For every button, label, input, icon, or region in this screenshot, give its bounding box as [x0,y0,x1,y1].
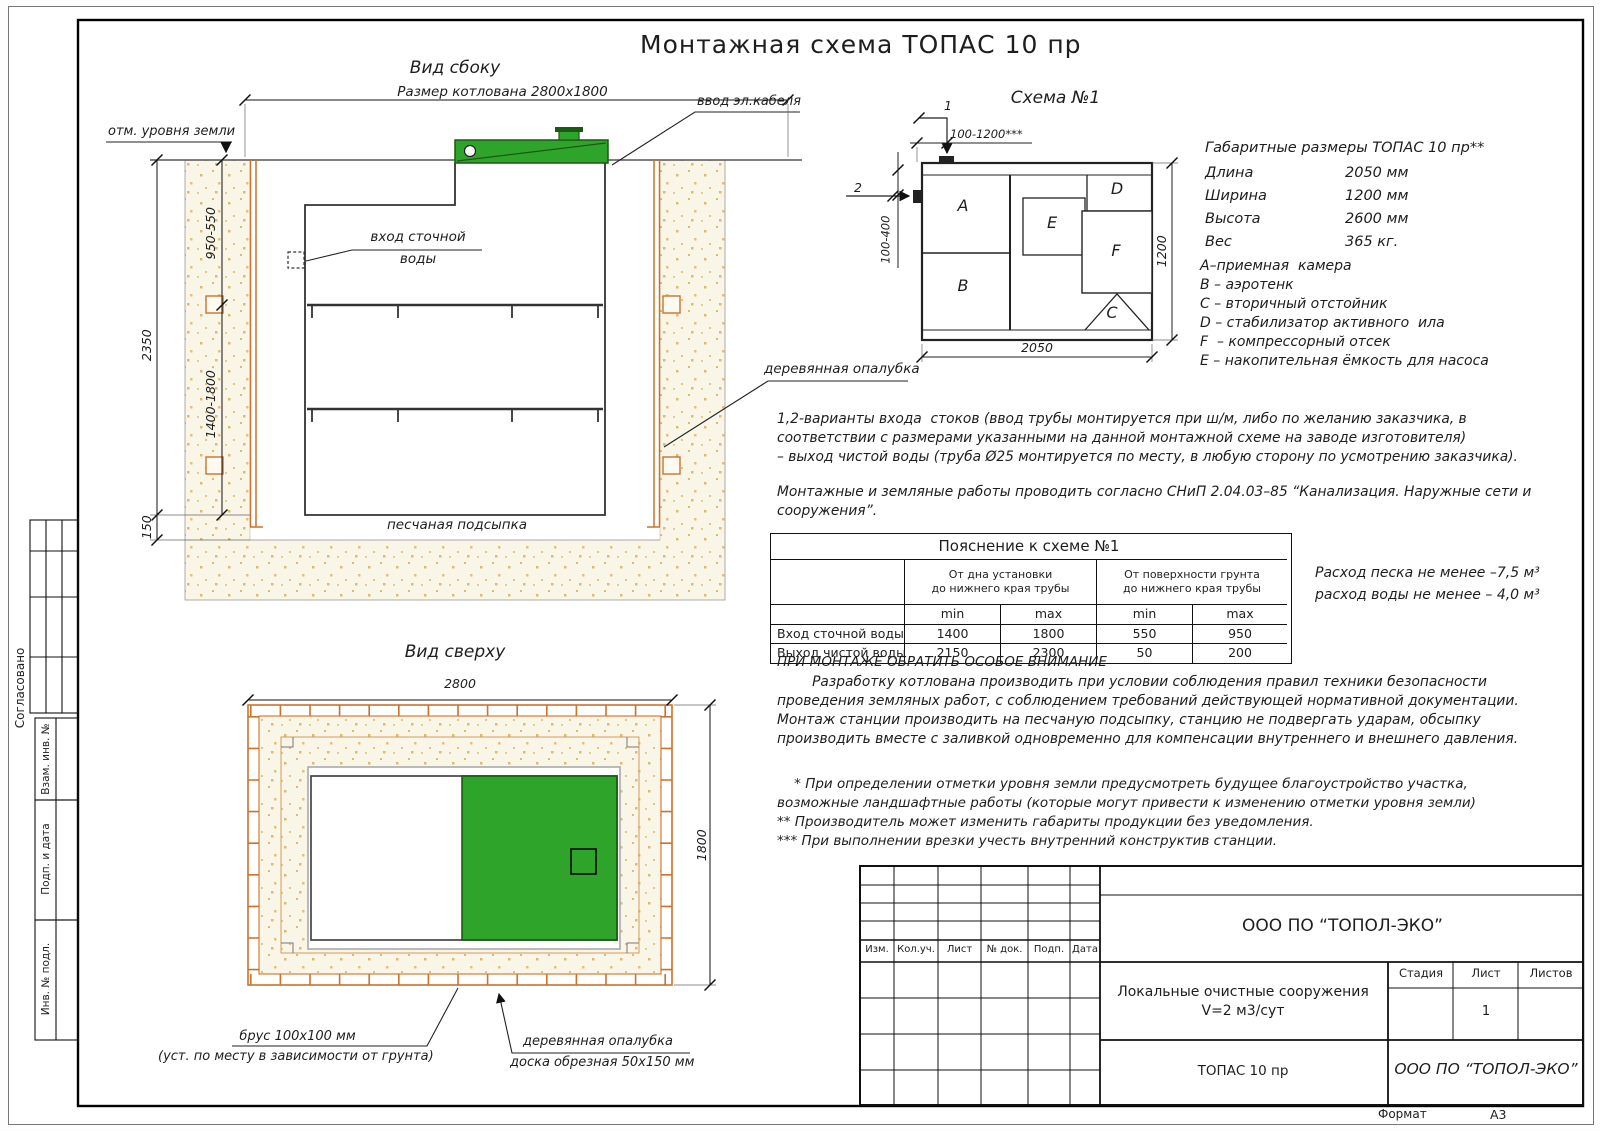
table-max-header: max [1193,605,1287,625]
company-name: ООО ПО “ТОПОЛ-ЭКО” [1110,917,1575,937]
table-min-header: min [905,605,1001,625]
legend-line-b: В – аэротенк [1200,277,1294,293]
sheet-value: 1 [1454,1005,1518,1020]
table-row-outlet-v4: 200 [1193,644,1287,663]
project-name-line2: V=2 м3/сут [1103,1003,1383,1019]
sidebar-box1-label: Взам. инв. № [40,719,52,799]
dim-bedding: 150 [140,497,154,557]
table-min-header: min [1097,605,1193,625]
legend-line-a: А–приемная камера [1200,258,1352,274]
schema-dim-width: 2050 [1007,341,1067,355]
formwork-board-label-line2: доска обрезная 50x150 мм [510,1056,688,1071]
product-name: ТОПАС 10 пр [1103,1064,1383,1080]
stamp-col-data: Дата [1070,944,1100,956]
attention-body-line3: Монтаж станции производить на песчаную п… [777,713,1481,729]
sidebar-box2-label: Подп. и дата [40,819,52,899]
compartment-b-label: B [948,277,978,295]
table-row-inlet-name: Вход сточной воды [771,625,905,644]
note-variants-line2: соответствии с размерами указанными на д… [777,431,1466,447]
side-view-title: Вид сбоку [400,59,510,79]
top-view-title: Вид сверху [395,643,515,663]
table-empty-cell [771,605,905,625]
table-row-outlet-v3: 50 [1097,644,1193,663]
note-snip-line2: сооружения”. [777,504,877,520]
spec-value-height: 2600 мм [1345,211,1408,228]
attention-body-line4: производить вместе с заливкой одновремен… [777,732,1518,748]
compartment-f-label: F [1101,242,1131,260]
formwork-label: деревянная опалубка [764,362,910,378]
top-view-dim-width: 2800 [430,677,490,691]
inlet-port-1 [939,156,954,164]
spec-label-weight: Вес [1205,234,1232,251]
beam-label-line2: (уст. по месту в зависимости от грунта) [158,1050,433,1065]
schema-title: Схема №1 [998,89,1113,109]
table-row-inlet-v2: 1800 [1001,625,1097,644]
format-label: Формат [1378,1108,1427,1122]
spec-label-height: Высота [1205,211,1261,228]
compartment-a-label: A [948,197,978,215]
inlet-label-line2: воды [352,252,484,268]
stamp-col-list: Лист [938,944,981,956]
stamp-col-podp: Подп. [1028,944,1070,956]
note-snip-line1: Монтажные и земляные работы проводить со… [777,485,1531,501]
vent-stack [559,131,579,140]
compartment-e-label: E [1037,214,1067,232]
ground-level-label: отм. уровня земли [108,125,235,140]
dim-upper-range: 950-550 [204,198,218,268]
sidebar-agreed-label: Согласовано [14,638,28,738]
page-title: Монтажная схема ТОПАС 10 пр [640,31,1040,60]
footnote-line4: *** При выполнении врезки учесть внутрен… [777,834,1277,850]
schema-mark-2: 2 [850,181,866,195]
spec-label-length: Длина [1205,165,1253,182]
note-variants-line3: – выход чистой воды (труба Ø25 монтирует… [777,450,1518,466]
compartment-d-label: D [1102,180,1132,198]
sidebar-box3-label: Инв. № подл. [40,939,52,1019]
sand-bedding-label: песчаная подсыпка [382,518,532,534]
sheets-label: Листов [1519,967,1583,980]
specs-heading: Габаритные размеры ТОПАС 10 пр** [1205,140,1484,157]
stamp-col-ndok: № док. [981,944,1028,956]
sand-consumption: Расход песка не менее –7,5 м³ [1315,565,1540,581]
spec-label-width: Ширина [1205,188,1267,205]
table-max-header: max [1001,605,1097,625]
cable-entry-label: ввод эл.кабеля [697,95,801,110]
vent-cap [555,127,583,132]
table-row-inlet-v3: 550 [1097,625,1193,644]
installation-drawing-page: { "page": { "title": "Монтажная схема ТО… [0,0,1600,1131]
water-consumption: расход воды не менее – 4,0 м³ [1315,587,1540,603]
beam-label-line1: брус 100x100 мм [225,1030,370,1045]
legend-line-d: D – стабилизатор активного ила [1200,315,1445,331]
company-name-italic: ООО ПО “ТОПОЛ-ЭКО” [1392,1061,1580,1079]
formwork-board-label-line1: деревянная опалубка [518,1035,678,1050]
table-group2-header: От поверхности грунта до нижнего края тр… [1097,560,1287,605]
legend-line-f: F – компрессорный отсек [1200,334,1391,350]
lid-port-circle [465,146,476,157]
explanation-table: Пояснение к схеме №1 От дна установки до… [770,533,1292,664]
table-row-inlet-v4: 950 [1193,625,1287,644]
spec-value-width: 1200 мм [1345,188,1408,205]
legend-line-c: С – вторичный отстойник [1200,296,1388,312]
spec-value-weight: 365 кг. [1345,234,1398,251]
project-name-line1: Локальные очистные сооружения [1103,984,1383,1000]
schema-mark-1: 1 [940,99,956,113]
stamp-col-koluch: Кол.уч. [894,944,938,956]
tank-top-green-lid [462,776,617,940]
footnote-line3: ** Производитель может изменить габариты… [777,815,1314,831]
schema-dim-top: 100-1200*** [950,128,1023,141]
pit-size-dimension: Размер котлована 2800x1800 [330,85,675,101]
legend-line-e: Е – накопительная ёмкость для насоса [1200,353,1489,369]
dim-depth-total: 2350 [140,315,154,375]
attention-body-line1: Разработку котлована производить при усл… [777,675,1487,691]
table-corner-cell [771,560,905,605]
sheet-label: Лист [1454,967,1518,980]
top-view-dim-height: 1800 [695,815,709,875]
excavation-pit [250,160,660,540]
inlet-port-2 [913,190,923,203]
attention-heading: ПРИ МОНТАЖЕ ОБРАТИТЬ ОСОБОЕ ВНИМАНИЕ [777,655,1107,671]
spec-value-length: 2050 мм [1345,165,1408,182]
dim-lower-range: 1400-1800 [204,359,218,449]
schema-dim-height: 1200 [1155,221,1169,281]
note-variants-line1: 1,2-варианты входа стоков (ввод трубы мо… [777,412,1467,428]
table-group1-header: От дна установки до нижнего края трубы [905,560,1097,605]
stamp-col-izm: Изм. [855,944,899,956]
footnote-line2: возможные ландшафтные работы (которые мо… [777,796,1476,812]
table-row-inlet-v1: 1400 [905,625,1001,644]
format-value: А3 [1490,1108,1507,1122]
table-title: Пояснение к схеме №1 [771,534,1287,560]
inlet-label-line1: вход сточной [352,230,484,246]
schema-dim-left: 100-400 [879,205,892,275]
attention-body-line2: проведения земляных работ, с соблюдением… [777,694,1519,710]
compartment-c-label: C [1097,304,1127,322]
footnote-line1: * При определении отметки уровня земли п… [777,777,1468,793]
stage-label: Стадия [1389,967,1453,980]
